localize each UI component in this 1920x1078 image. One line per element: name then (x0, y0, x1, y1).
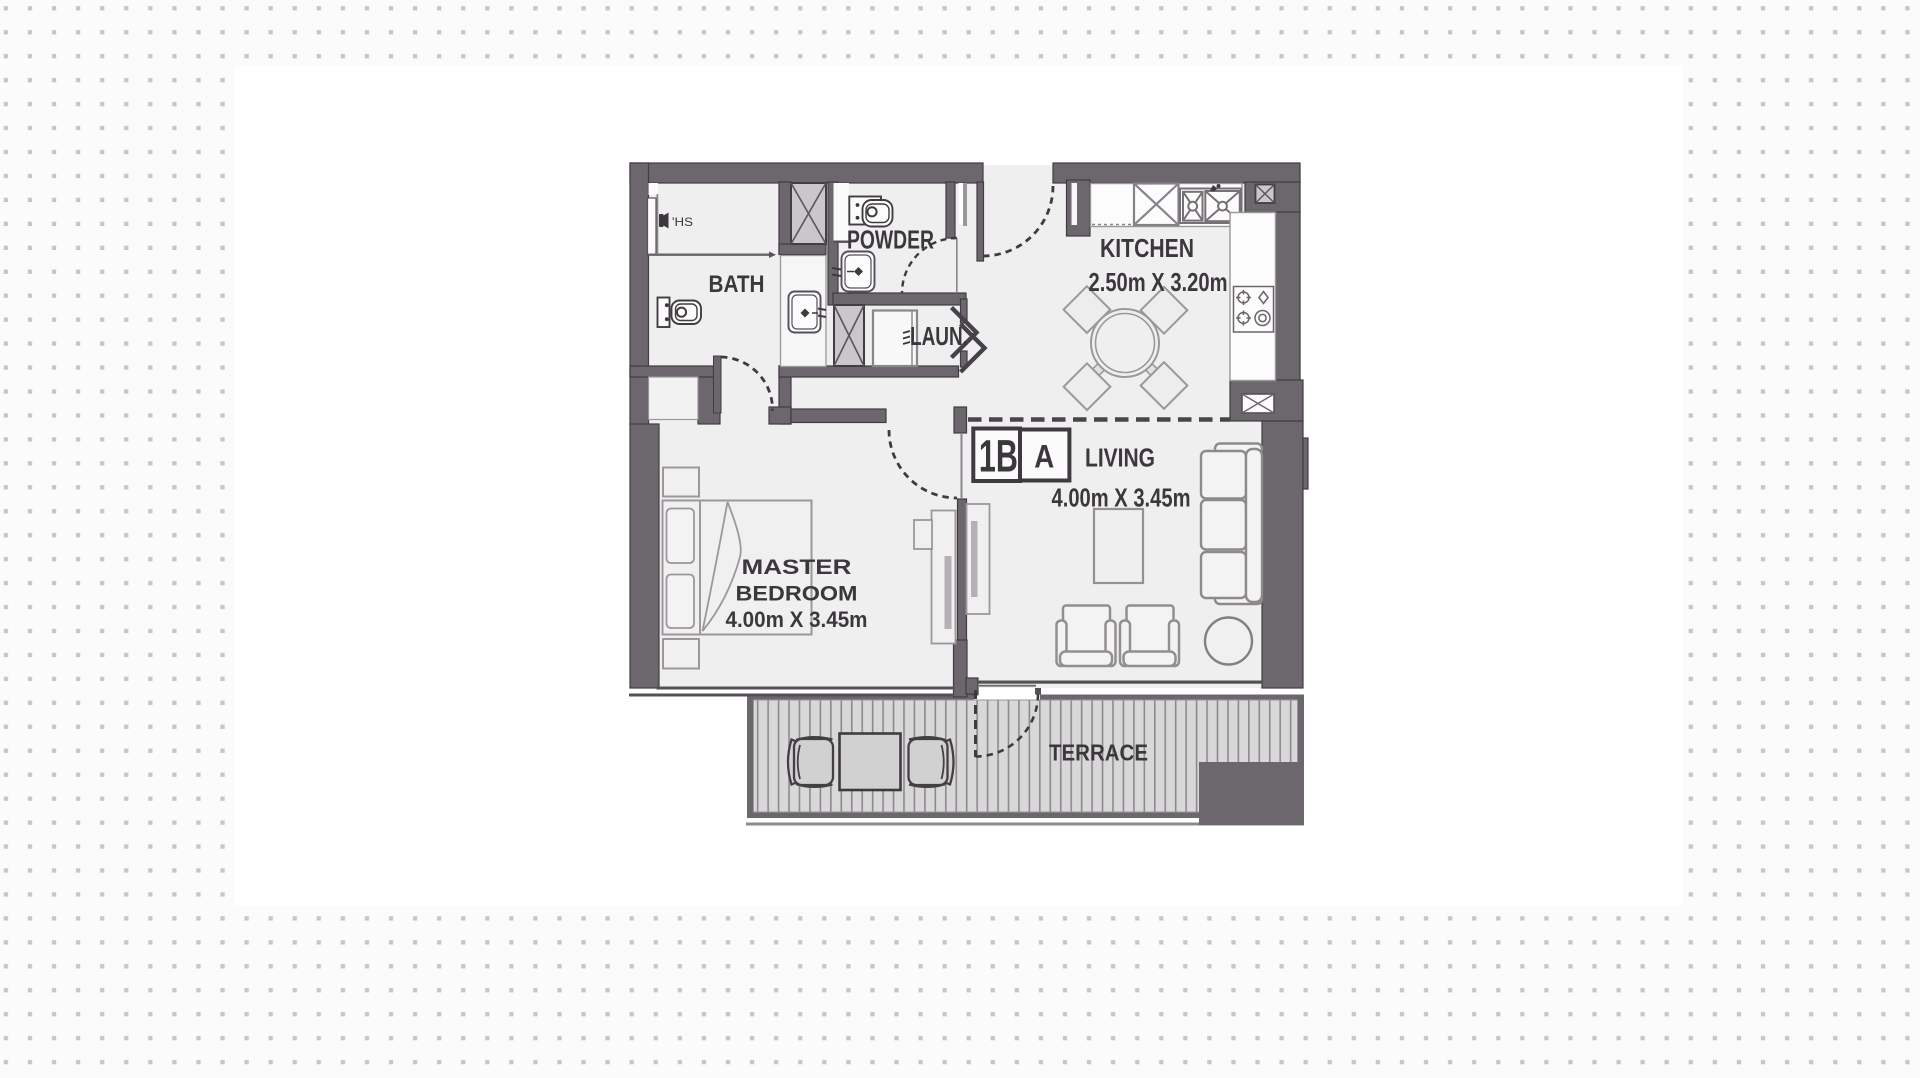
svg-text:KITCHEN: KITCHEN (1100, 233, 1194, 263)
svg-text:4.00m X 3.45m: 4.00m X 3.45m (726, 607, 868, 632)
svg-text:TERRACE: TERRACE (1049, 740, 1148, 766)
svg-text:4.00m X 3.45m: 4.00m X 3.45m (1052, 483, 1191, 513)
svg-text:MASTER: MASTER (742, 556, 852, 579)
svg-text:1B: 1B (979, 431, 1018, 482)
svg-text:'HS: 'HS (672, 215, 693, 229)
svg-text:LAUN.: LAUN. (910, 321, 968, 351)
svg-text:BEDROOM: BEDROOM (736, 583, 858, 606)
svg-text:2.50m X 3.20m: 2.50m X 3.20m (1089, 267, 1228, 297)
svg-text:BATH: BATH (709, 271, 765, 298)
svg-text:POWDER: POWDER (847, 225, 934, 255)
svg-text:LIVING: LIVING (1085, 443, 1155, 473)
svg-text:A: A (1034, 439, 1054, 475)
